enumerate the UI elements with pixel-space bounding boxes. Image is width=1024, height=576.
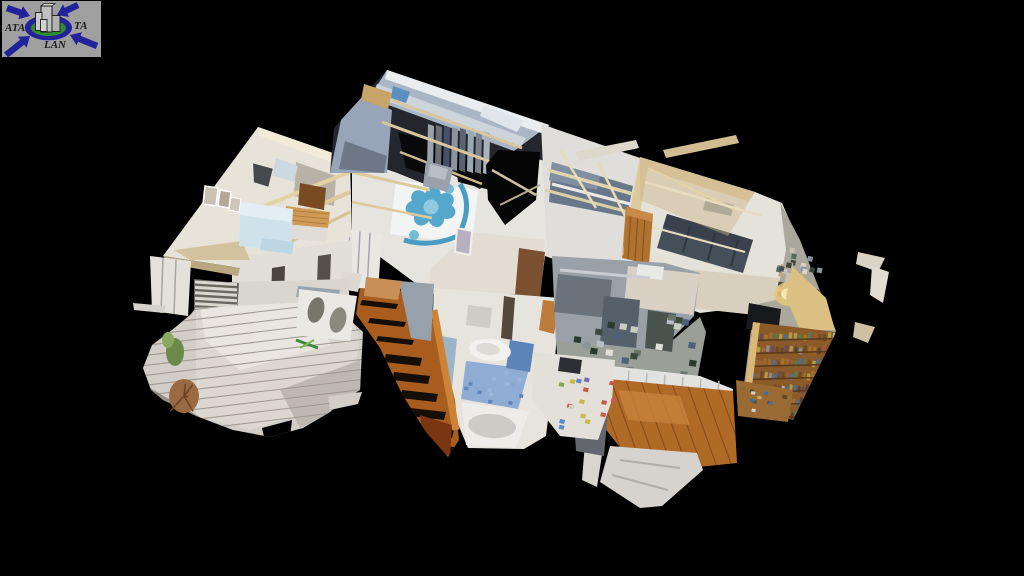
- svg-text:ATA: ATA: [4, 22, 25, 34]
- svg-text:LAN: LAN: [43, 39, 67, 51]
- svg-text:TA: TA: [74, 20, 87, 32]
